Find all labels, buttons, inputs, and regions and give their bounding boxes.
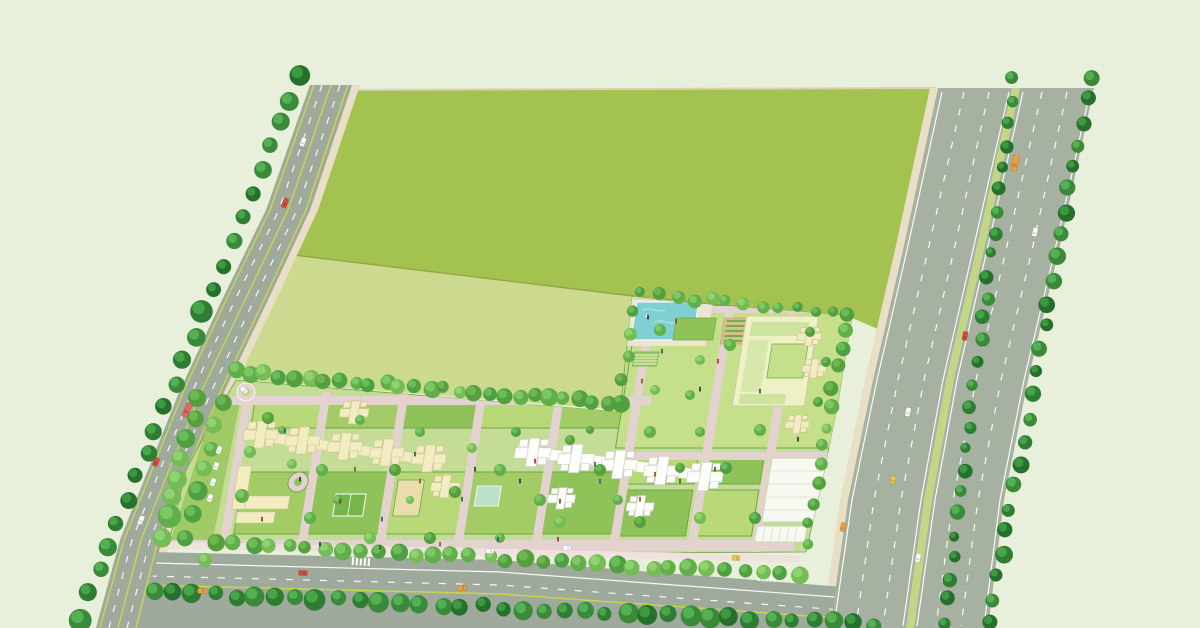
tree — [271, 370, 286, 385]
tree — [660, 560, 675, 575]
tree — [679, 558, 697, 576]
tree — [79, 583, 97, 601]
tree — [261, 539, 275, 553]
event-lawn — [673, 318, 717, 340]
person — [647, 315, 649, 320]
tree — [494, 464, 506, 476]
tree — [949, 532, 959, 542]
tree — [331, 590, 346, 605]
tree — [246, 186, 261, 201]
tree — [792, 302, 802, 312]
masterplan-canvas — [0, 0, 1200, 628]
tree — [1000, 140, 1013, 153]
tree — [958, 464, 973, 479]
person — [534, 459, 536, 464]
tree — [766, 611, 783, 628]
tree — [986, 247, 996, 257]
tree — [992, 181, 1006, 195]
tree — [623, 351, 635, 363]
tree — [772, 566, 786, 580]
person — [354, 467, 356, 472]
tree — [1007, 96, 1019, 108]
tree — [184, 505, 202, 523]
tree — [235, 489, 249, 503]
tree — [1013, 457, 1030, 474]
tree — [198, 553, 212, 567]
tree — [244, 446, 256, 458]
tree — [757, 301, 769, 313]
tree — [824, 399, 839, 414]
tree — [1002, 504, 1015, 517]
tree — [840, 307, 854, 321]
tree — [672, 291, 685, 304]
tree — [1081, 90, 1096, 105]
tree — [155, 398, 172, 415]
tree — [158, 505, 181, 528]
tree — [805, 327, 815, 337]
tree — [476, 597, 491, 612]
tree — [244, 586, 264, 606]
tree — [950, 504, 965, 519]
tree — [333, 495, 343, 505]
person — [797, 437, 799, 442]
person — [379, 545, 381, 550]
tree — [266, 588, 284, 606]
tree — [597, 607, 611, 621]
tree — [1025, 386, 1041, 402]
tree — [409, 549, 424, 564]
tree — [498, 554, 512, 568]
tree — [254, 161, 272, 179]
tree — [975, 332, 989, 346]
tree — [540, 388, 558, 406]
car — [486, 548, 494, 553]
tree — [298, 541, 311, 554]
tree — [991, 206, 1004, 219]
splash-lawn — [474, 486, 501, 506]
tree — [461, 547, 476, 562]
tree — [791, 567, 809, 585]
courtyard — [481, 402, 555, 428]
person — [699, 387, 701, 392]
tree — [451, 599, 468, 616]
person — [261, 517, 263, 522]
tree — [176, 429, 195, 448]
tree — [719, 295, 730, 306]
tree — [435, 598, 452, 615]
tree — [528, 388, 542, 402]
tree — [942, 573, 957, 588]
tree — [146, 583, 164, 601]
tree — [162, 487, 181, 506]
tree — [624, 328, 637, 341]
tree — [1038, 296, 1055, 313]
tree — [688, 294, 702, 308]
courtyard — [403, 402, 477, 428]
tree — [407, 379, 421, 393]
person — [675, 319, 677, 324]
tree — [415, 427, 425, 437]
tree — [949, 551, 960, 562]
tree — [615, 373, 628, 386]
tree — [1084, 70, 1100, 86]
tree — [972, 356, 984, 368]
tree — [391, 594, 410, 613]
tree — [99, 538, 117, 556]
tree — [838, 323, 853, 338]
tree — [205, 417, 222, 434]
tree — [624, 560, 640, 576]
tree — [807, 612, 823, 628]
person — [559, 499, 561, 504]
person — [414, 452, 416, 457]
car — [563, 545, 571, 550]
person — [439, 542, 441, 547]
person — [299, 477, 301, 482]
tree — [1005, 71, 1018, 84]
tree — [128, 468, 143, 483]
tree — [577, 602, 594, 619]
tree — [1059, 179, 1075, 195]
tree — [287, 589, 303, 605]
tree — [964, 422, 976, 434]
tree — [537, 555, 551, 569]
tree — [724, 339, 736, 351]
tree — [442, 546, 458, 562]
tree — [262, 412, 274, 424]
person — [339, 499, 341, 504]
tree — [364, 532, 376, 544]
tree — [334, 543, 352, 561]
tree — [93, 561, 109, 577]
person — [381, 517, 383, 522]
tree — [754, 424, 766, 436]
tree — [654, 324, 666, 336]
tree — [483, 387, 497, 401]
tree — [985, 594, 999, 608]
tree — [565, 435, 575, 445]
tree — [228, 361, 245, 378]
tree — [627, 305, 638, 316]
tree — [1023, 413, 1037, 427]
person — [319, 542, 321, 547]
tree — [955, 485, 967, 497]
tree — [588, 554, 606, 572]
tree — [406, 496, 414, 504]
tree — [1049, 247, 1067, 265]
tree — [634, 516, 646, 528]
tree — [989, 227, 1003, 241]
tree — [360, 378, 374, 392]
tree — [236, 209, 251, 224]
person — [714, 467, 716, 472]
tree — [811, 307, 821, 317]
tree — [675, 463, 685, 473]
tree — [108, 516, 123, 531]
tree — [554, 516, 566, 528]
tree — [720, 462, 732, 474]
person — [519, 479, 521, 484]
tree — [454, 386, 466, 398]
tree — [215, 394, 232, 411]
tree — [391, 544, 408, 561]
tree — [695, 427, 705, 437]
person — [557, 537, 559, 542]
tree — [368, 592, 389, 613]
person — [594, 462, 596, 467]
tree — [609, 556, 627, 574]
tree — [828, 306, 838, 316]
tree — [177, 530, 193, 546]
tree — [557, 603, 573, 619]
tree — [196, 460, 212, 476]
tree — [145, 423, 162, 440]
tree — [410, 595, 428, 613]
tree — [496, 602, 510, 616]
tree — [284, 539, 297, 552]
tree — [225, 535, 241, 551]
tree — [188, 481, 207, 500]
tree — [209, 586, 224, 601]
tree — [831, 358, 845, 372]
person — [717, 359, 719, 364]
tree — [390, 379, 405, 394]
person — [497, 537, 499, 542]
tree — [207, 534, 224, 551]
tree — [813, 397, 823, 407]
tree — [613, 495, 623, 505]
tree — [698, 560, 714, 576]
tree — [353, 544, 368, 559]
tree — [169, 377, 185, 393]
tree — [255, 364, 271, 380]
tree — [694, 512, 706, 524]
tree — [653, 287, 666, 300]
tree — [681, 605, 702, 626]
tree — [717, 562, 732, 577]
tree — [554, 553, 569, 568]
tree — [822, 423, 832, 433]
tree — [756, 565, 771, 580]
tree — [647, 561, 663, 577]
person — [474, 467, 476, 472]
car — [457, 585, 466, 590]
tree — [836, 342, 851, 357]
tree — [739, 564, 752, 577]
person — [679, 479, 681, 484]
tree — [496, 388, 512, 404]
tree — [171, 450, 188, 467]
tree — [660, 605, 677, 622]
tree — [736, 297, 749, 310]
tree — [164, 583, 182, 601]
tree — [1006, 477, 1022, 493]
tree — [304, 512, 316, 524]
person — [461, 497, 463, 502]
tree — [534, 494, 546, 506]
tree — [719, 607, 738, 626]
tree — [187, 328, 206, 347]
tree — [304, 589, 326, 611]
tree — [495, 533, 505, 543]
site-plan-illustration — [0, 0, 1200, 628]
tree — [1071, 140, 1084, 153]
tree — [816, 439, 828, 451]
tree — [823, 381, 838, 396]
tree — [586, 426, 594, 434]
tree — [272, 113, 290, 131]
tree — [940, 590, 955, 605]
tree — [960, 443, 970, 453]
tree — [619, 603, 640, 624]
tree — [979, 270, 993, 284]
tree — [389, 464, 401, 476]
tree — [635, 287, 645, 297]
tree — [803, 539, 814, 550]
tree — [695, 355, 705, 365]
person — [759, 389, 761, 394]
tree — [812, 476, 826, 490]
person — [419, 479, 421, 484]
tree — [332, 373, 348, 389]
tree — [1076, 116, 1091, 131]
tree — [997, 522, 1012, 537]
person — [654, 472, 656, 477]
tree — [773, 303, 784, 314]
tree — [465, 385, 481, 401]
tree — [1053, 226, 1068, 241]
tree — [997, 162, 1008, 173]
tree — [1046, 273, 1062, 289]
tree — [785, 614, 799, 628]
person — [599, 479, 601, 484]
tree — [1040, 318, 1053, 331]
tree — [352, 592, 368, 608]
tree — [1066, 160, 1079, 173]
tree — [120, 492, 137, 509]
tree — [226, 233, 242, 249]
tree — [262, 137, 277, 152]
tree — [570, 555, 586, 571]
tree — [229, 590, 245, 606]
tree — [216, 259, 231, 274]
tree — [644, 426, 656, 438]
tree — [614, 396, 625, 407]
tree — [1030, 365, 1042, 377]
tree — [584, 395, 598, 409]
tree — [637, 605, 657, 625]
tree — [437, 381, 449, 393]
car — [197, 588, 206, 593]
tree — [513, 390, 528, 405]
tree — [206, 282, 221, 297]
tree — [190, 300, 213, 323]
person — [641, 379, 643, 384]
tree — [316, 464, 328, 476]
tree — [371, 544, 385, 558]
tree — [989, 568, 1002, 581]
person — [661, 349, 663, 354]
tree — [1018, 435, 1032, 449]
tree — [287, 459, 297, 469]
tree — [315, 374, 330, 389]
tree — [289, 65, 310, 86]
tree — [173, 351, 191, 369]
tree — [424, 546, 441, 563]
tree — [808, 498, 820, 510]
tree — [537, 604, 552, 619]
tree — [966, 380, 977, 391]
tree — [685, 390, 695, 400]
tree — [449, 486, 461, 498]
tree — [706, 292, 719, 305]
tree — [700, 608, 721, 628]
tree — [650, 385, 660, 395]
tree — [1058, 204, 1075, 221]
tree — [821, 357, 831, 367]
tree — [246, 537, 263, 554]
tree — [556, 391, 569, 404]
tree — [516, 549, 534, 567]
tree — [1031, 341, 1047, 357]
tree — [467, 443, 477, 453]
tree — [286, 370, 303, 387]
tree — [749, 512, 761, 524]
tree — [511, 427, 521, 437]
tree — [982, 293, 995, 306]
tree — [167, 470, 187, 490]
tree — [355, 415, 365, 425]
tree — [962, 400, 976, 414]
tree — [815, 458, 828, 471]
tree — [802, 517, 813, 528]
tree — [1001, 117, 1013, 129]
tree — [514, 601, 533, 620]
car — [732, 555, 740, 561]
tree — [187, 410, 204, 427]
person — [284, 429, 286, 434]
car — [298, 570, 307, 575]
tree — [280, 92, 299, 111]
tree — [424, 532, 436, 544]
tree — [995, 546, 1013, 564]
person — [639, 497, 641, 502]
tree — [975, 309, 990, 324]
tree — [153, 529, 172, 548]
